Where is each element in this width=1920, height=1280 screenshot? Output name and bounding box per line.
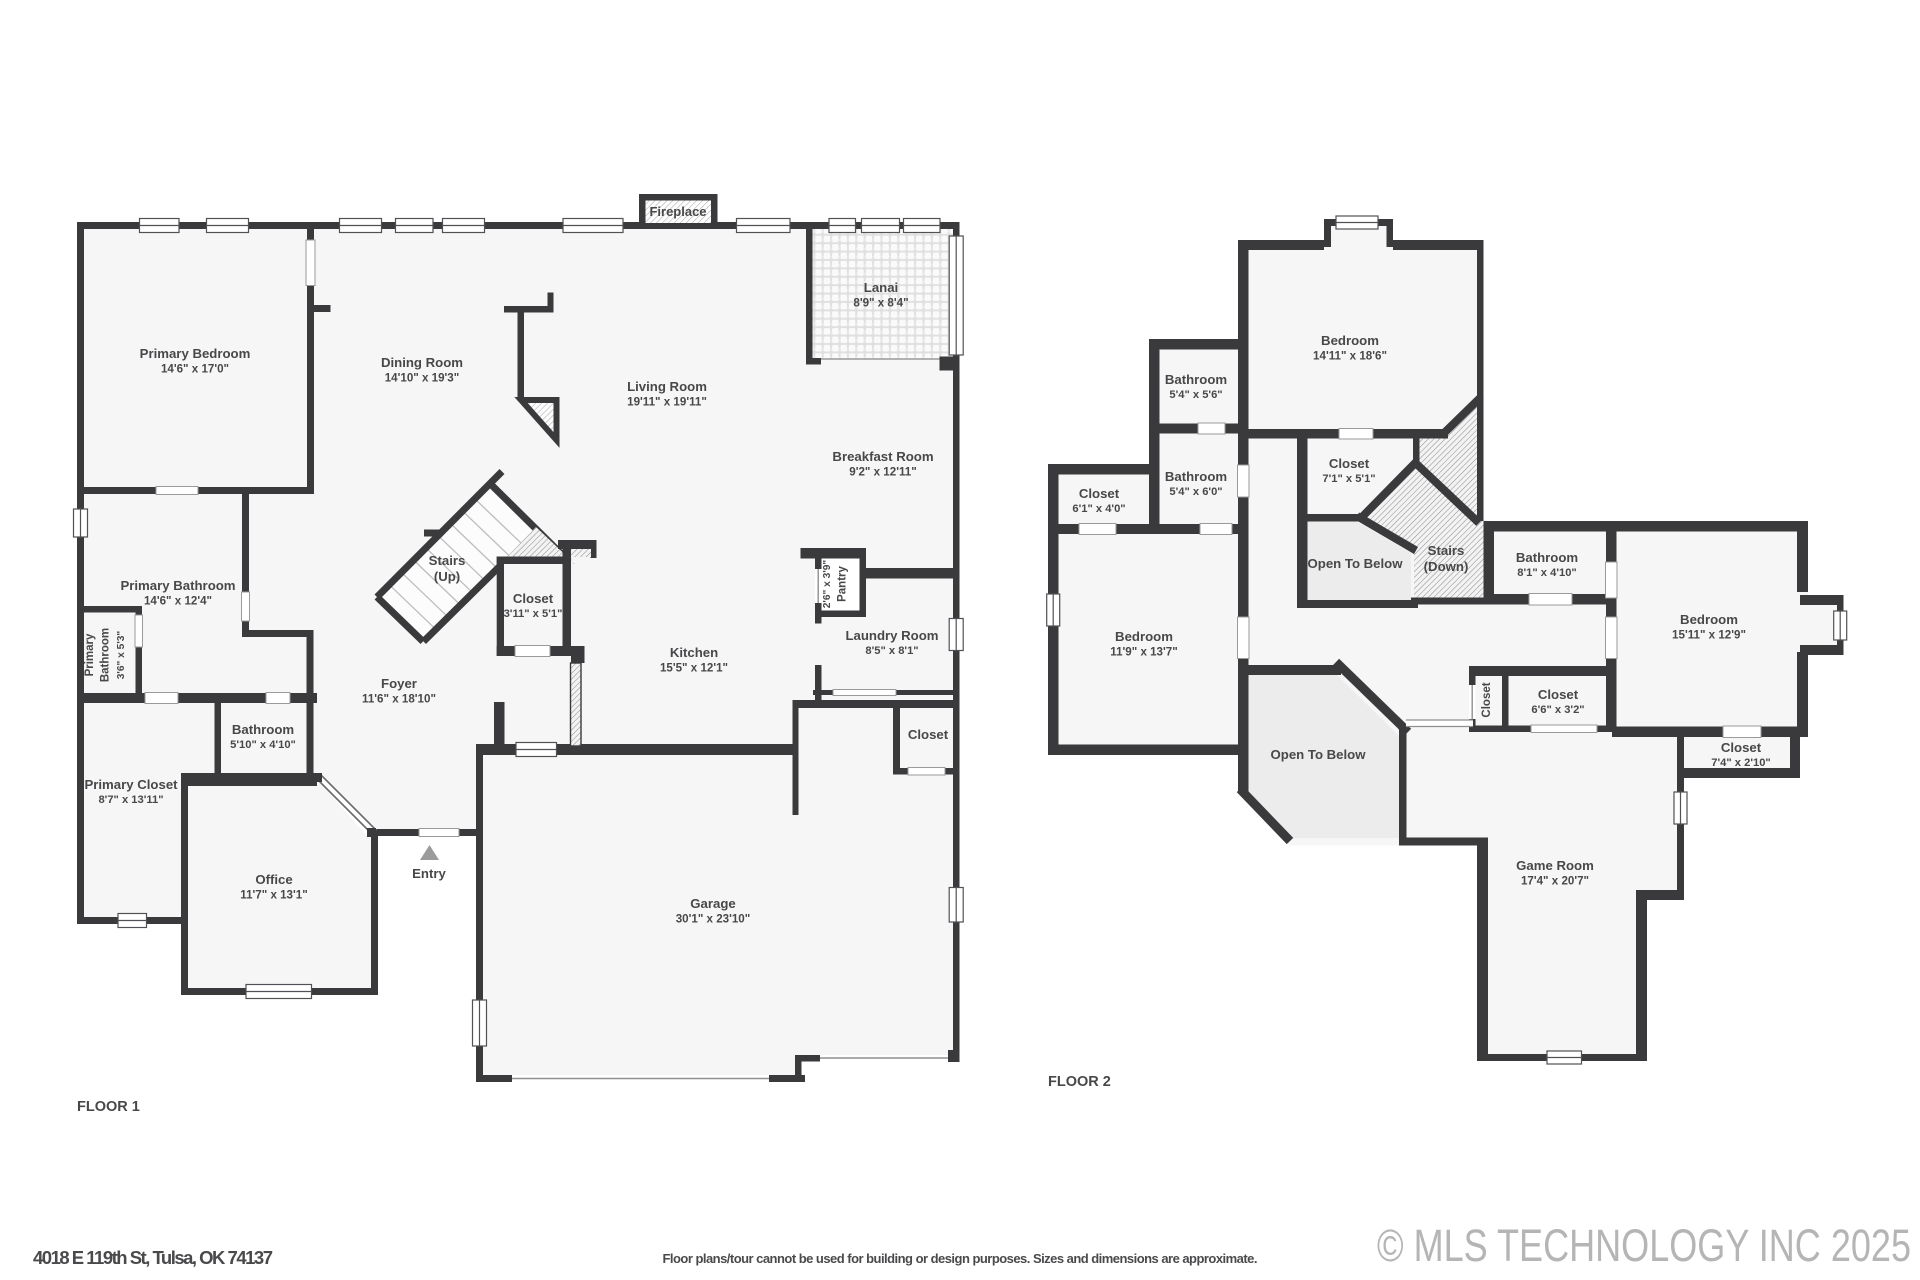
svg-text:9'2" x 12'11": 9'2" x 12'11" <box>849 466 916 479</box>
svg-text:14'6" x 17'0": 14'6" x 17'0" <box>161 363 229 376</box>
svg-text:6'1" x 4'0": 6'1" x 4'0" <box>1072 503 1125 515</box>
svg-text:Stairs: Stairs <box>1428 543 1465 558</box>
svg-text:Laundry Room: Laundry Room <box>845 628 938 643</box>
svg-text:Breakfast Room: Breakfast Room <box>832 449 933 464</box>
svg-text:7'1" x 5'1": 7'1" x 5'1" <box>1322 473 1375 485</box>
svg-text:Primary Closet: Primary Closet <box>84 777 178 792</box>
svg-text:Foyer: Foyer <box>381 676 417 691</box>
svg-text:Garage: Garage <box>690 896 735 911</box>
svg-text:Open To Below: Open To Below <box>1308 556 1404 571</box>
svg-text:Closet: Closet <box>1329 456 1370 471</box>
svg-text:15'5" x 12'1": 15'5" x 12'1" <box>660 662 728 675</box>
svg-text:Dining Room: Dining Room <box>381 355 463 370</box>
svg-text:2'6" x 3'9": 2'6" x 3'9" <box>822 560 833 609</box>
svg-text:Closet: Closet <box>1538 687 1579 702</box>
svg-text:Entry: Entry <box>412 866 446 881</box>
svg-text:Closet: Closet <box>1721 740 1762 755</box>
svg-text:14'10" x 19'3": 14'10" x 19'3" <box>385 372 460 385</box>
svg-text:30'1" x 23'10": 30'1" x 23'10" <box>676 913 751 926</box>
svg-text:14'11" x 18'6": 14'11" x 18'6" <box>1313 350 1387 363</box>
svg-text:Closet: Closet <box>1481 682 1493 717</box>
svg-text:3'11" x 5'1": 3'11" x 5'1" <box>504 608 563 620</box>
svg-text:Floor plans/tour cannot be use: Floor plans/tour cannot be used for buil… <box>663 1251 1258 1266</box>
svg-text:14'6" x 12'4": 14'6" x 12'4" <box>144 595 212 608</box>
svg-text:6'6" x 3'2": 6'6" x 3'2" <box>1531 704 1584 716</box>
svg-text:Living Room: Living Room <box>627 379 707 394</box>
svg-text:Bedroom: Bedroom <box>1680 612 1738 627</box>
svg-text:(Up): (Up) <box>434 569 460 584</box>
svg-text:3'6" x 5'3": 3'6" x 5'3" <box>116 631 127 680</box>
svg-text:11'6" x 18'10": 11'6" x 18'10" <box>362 693 436 706</box>
svg-text:19'11" x 19'11": 19'11" x 19'11" <box>627 396 707 409</box>
svg-text:Kitchen: Kitchen <box>670 645 718 660</box>
svg-text:Bedroom: Bedroom <box>1115 629 1173 644</box>
svg-text:15'11" x 12'9": 15'11" x 12'9" <box>1672 629 1746 642</box>
svg-text:11'7" x 13'1": 11'7" x 13'1" <box>240 889 307 902</box>
svg-text:7'4" x 2'10": 7'4" x 2'10" <box>1711 757 1770 769</box>
svg-text:Pantry: Pantry <box>837 566 849 602</box>
svg-text:Stairs: Stairs <box>429 553 466 568</box>
svg-text:5'4" x 6'0": 5'4" x 6'0" <box>1169 486 1222 498</box>
svg-text:Bathroom: Bathroom <box>1516 550 1578 565</box>
svg-text:11'9" x 13'7": 11'9" x 13'7" <box>1110 646 1177 659</box>
svg-text:Primary Bedroom: Primary Bedroom <box>140 346 251 361</box>
svg-text:(Down): (Down) <box>1424 559 1469 574</box>
svg-text:8'1" x 4'10": 8'1" x 4'10" <box>1517 567 1576 579</box>
svg-text:4018 E 119th St, Tulsa, OK 741: 4018 E 119th St, Tulsa, OK 74137 <box>33 1247 273 1268</box>
svg-text:8'5" x 8'1": 8'5" x 8'1" <box>865 645 918 657</box>
svg-text:Closet: Closet <box>513 591 554 606</box>
svg-text:Bathroom: Bathroom <box>100 628 112 682</box>
svg-text:Bathroom: Bathroom <box>1165 372 1227 387</box>
svg-text:Lanai: Lanai <box>864 280 898 295</box>
svg-text:FLOOR 1: FLOOR 1 <box>77 1099 140 1115</box>
svg-text:5'4" x 5'6": 5'4" x 5'6" <box>1169 389 1222 401</box>
svg-text:Closet: Closet <box>1079 486 1120 501</box>
svg-text:Closet: Closet <box>908 727 949 742</box>
svg-text:5'10" x 4'10": 5'10" x 4'10" <box>230 739 296 751</box>
svg-text:Primary: Primary <box>84 633 96 676</box>
svg-text:Fireplace: Fireplace <box>649 204 706 219</box>
svg-text:Bedroom: Bedroom <box>1321 333 1379 348</box>
svg-text:Primary Bathroom: Primary Bathroom <box>120 578 235 593</box>
svg-text:Office: Office <box>255 872 292 887</box>
svg-text:8'7" x 13'11": 8'7" x 13'11" <box>98 794 163 806</box>
svg-text:Bathroom: Bathroom <box>232 722 294 737</box>
svg-text:Bathroom: Bathroom <box>1165 469 1227 484</box>
svg-text:© MLS TECHNOLOGY INC 2025: © MLS TECHNOLOGY INC 2025 <box>1377 1220 1911 1271</box>
svg-text:Open To Below: Open To Below <box>1271 747 1367 762</box>
svg-text:17'4" x 20'7": 17'4" x 20'7" <box>1521 875 1589 888</box>
svg-text:Game Room: Game Room <box>1516 858 1594 873</box>
svg-text:8'9" x 8'4": 8'9" x 8'4" <box>853 297 908 310</box>
svg-text:FLOOR 2: FLOOR 2 <box>1048 1074 1111 1090</box>
